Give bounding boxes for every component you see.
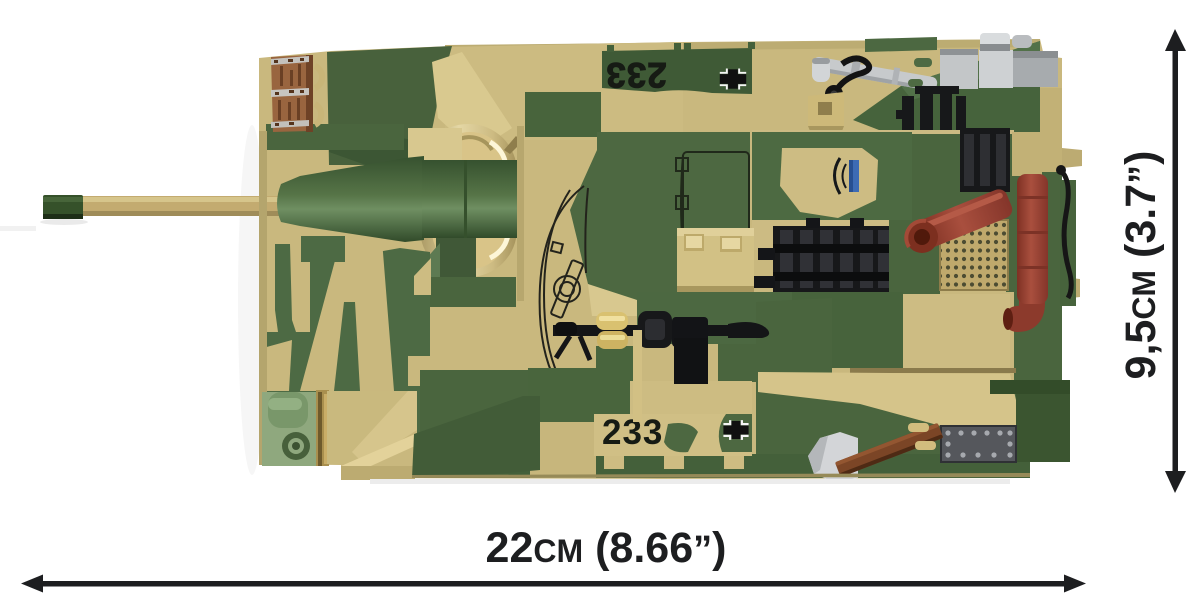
svg-text:22CM (8.66”): 22CM (8.66”)	[486, 524, 727, 572]
svg-text:9,5CM (3.7”): 9,5CM (3.7”)	[1117, 151, 1165, 380]
svg-text:233: 233	[602, 413, 663, 452]
svg-text:233: 233	[605, 55, 666, 94]
